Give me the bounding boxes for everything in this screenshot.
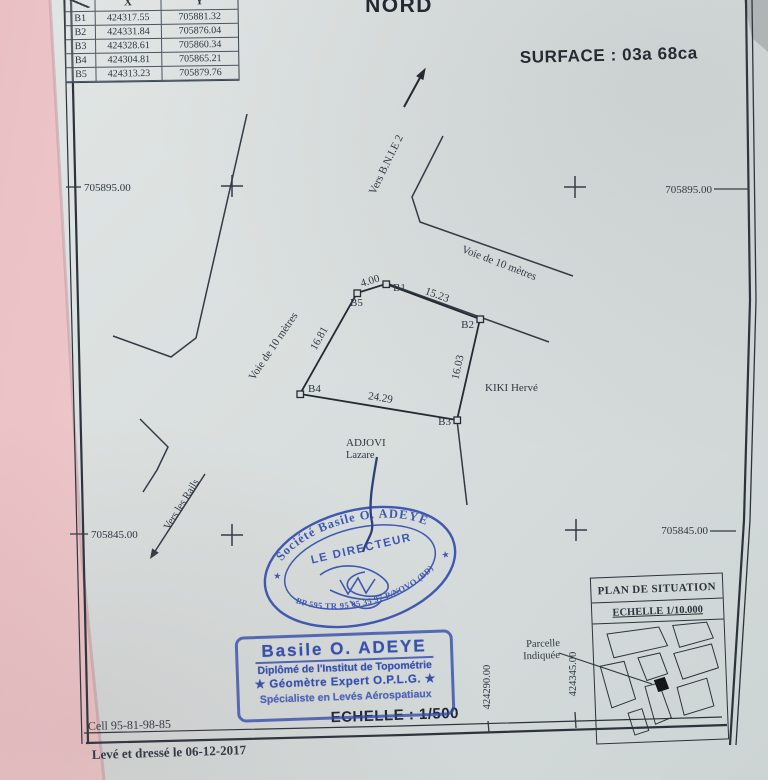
table-cell-x: 424317.55 — [96, 11, 162, 26]
indicated-parcel-mark — [653, 677, 669, 693]
table-cell-x: 424331.84 — [96, 25, 162, 40]
grid-label-y-bottom-left: 705845.00 — [91, 529, 138, 541]
table-cell-y: 705881.32 — [162, 10, 238, 25]
point-label-b3: B3 — [438, 416, 451, 428]
situation-mini-map — [594, 620, 726, 741]
table-cell-x: 424304.81 — [96, 53, 162, 68]
table-cell-y: 705879.76 — [162, 66, 238, 81]
table-row-point: B5 — [66, 68, 96, 82]
table-row-point: B1 — [66, 12, 96, 26]
table-cell-x: 424313.23 — [96, 67, 162, 82]
table-corner-diagonal — [65, 0, 95, 12]
table-row-point: B3 — [66, 40, 96, 54]
situation-map-box: PLAN DE SITUATION ECHELLE 1/10.000 — [590, 573, 729, 745]
table-cell-y: 705865.21 — [162, 52, 238, 67]
situation-pointer-label-2: Indiquée — [523, 650, 560, 662]
grid-label-x-left: 424290.00 — [482, 665, 493, 710]
table-row-point: B4 — [66, 54, 96, 68]
grid-label-y-top-left: 705895.00 — [84, 182, 131, 194]
neighbor-right-label: KIKI Hervé — [485, 382, 538, 394]
surveyor-stamp-box: Basile O. ADEYE Diplômé de l'Institut de… — [235, 629, 456, 723]
point-label-b5: B5 — [350, 297, 363, 309]
point-label-b4: B4 — [308, 383, 321, 395]
table-row-point: B2 — [66, 26, 96, 40]
table-cell-y: 705876.04 — [162, 24, 238, 39]
table-cell-y: 705860.34 — [162, 38, 238, 53]
neighbor-bottom-label-1: ADJOVI — [346, 437, 386, 449]
scanned-survey-plan-photo: NORD SURFACE : 03a 68ca 705895.00 705895… — [0, 0, 768, 780]
situation-pointer-label-1: Parcelle — [526, 638, 561, 650]
point-label-b2: B2 — [461, 319, 474, 331]
point-label-b1: B1 — [393, 282, 406, 294]
grid-label-y-top-right: 705895.00 — [665, 184, 712, 196]
neighbor-bottom-label-2: Lazare — [346, 450, 375, 461]
grid-label-y-bottom-right: 705845.00 — [661, 525, 708, 537]
table-cell-x: 424328.61 — [96, 39, 162, 54]
phone-label: Cell 95-81-98-85 — [88, 717, 171, 733]
north-label: NORD — [365, 0, 433, 17]
situation-map-title: PLAN DE SITUATION — [591, 574, 723, 604]
coordinate-table: X Y B1 424317.55 705881.32 B2 424331.84 … — [64, 0, 239, 83]
